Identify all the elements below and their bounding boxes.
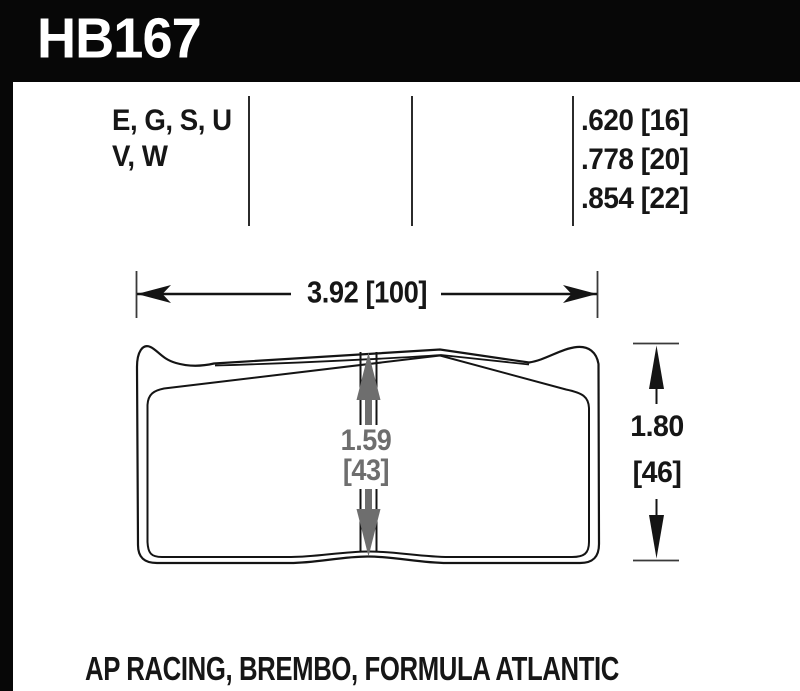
width-dimension-label: 3.92 [100] [307, 274, 427, 310]
height-arrow-up-icon [649, 346, 664, 390]
center-arrow-down-shaft [365, 489, 372, 512]
center-thickness-label-in: 1.59 [341, 424, 392, 458]
applications-label: AP RACING, BREMBO, FORMULA ATLANTIC [85, 650, 619, 688]
height-arrow-down-icon [649, 515, 664, 559]
center-arrow-up-shaft [365, 397, 372, 425]
brake-pad-diagram [0, 0, 800, 691]
height-label-mm: [46] [633, 456, 682, 490]
center-thickness-label-mm: [43] [343, 454, 389, 488]
spec-sheet-page: HB167 E, G, S, U V, W .620 [16] .778 [20… [0, 0, 800, 691]
height-label-in: 1.80 [630, 410, 684, 444]
